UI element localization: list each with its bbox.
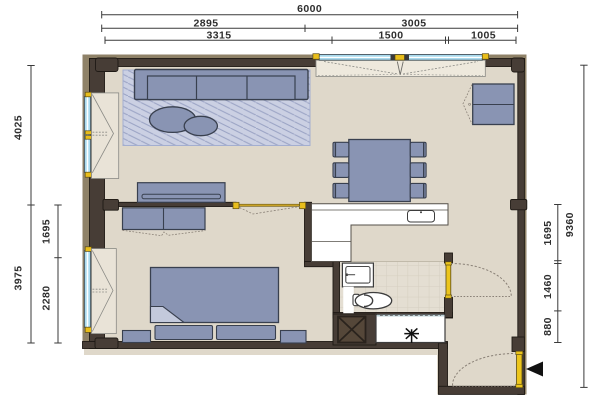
svg-text:3315: 3315 [207,30,232,42]
svg-text:1005: 1005 [471,30,496,42]
svg-text:6000: 6000 [297,3,322,15]
svg-text:2280: 2280 [41,286,53,311]
svg-text:1695: 1695 [41,219,53,244]
svg-text:880: 880 [542,317,554,336]
svg-text:4025: 4025 [13,115,25,140]
svg-text:1695: 1695 [542,221,554,246]
svg-text:3005: 3005 [402,18,427,30]
svg-text:9360: 9360 [564,212,576,237]
svg-text:1500: 1500 [379,30,404,42]
svg-text:2895: 2895 [194,18,219,30]
svg-text:1460: 1460 [542,274,554,299]
svg-text:3975: 3975 [13,266,25,291]
